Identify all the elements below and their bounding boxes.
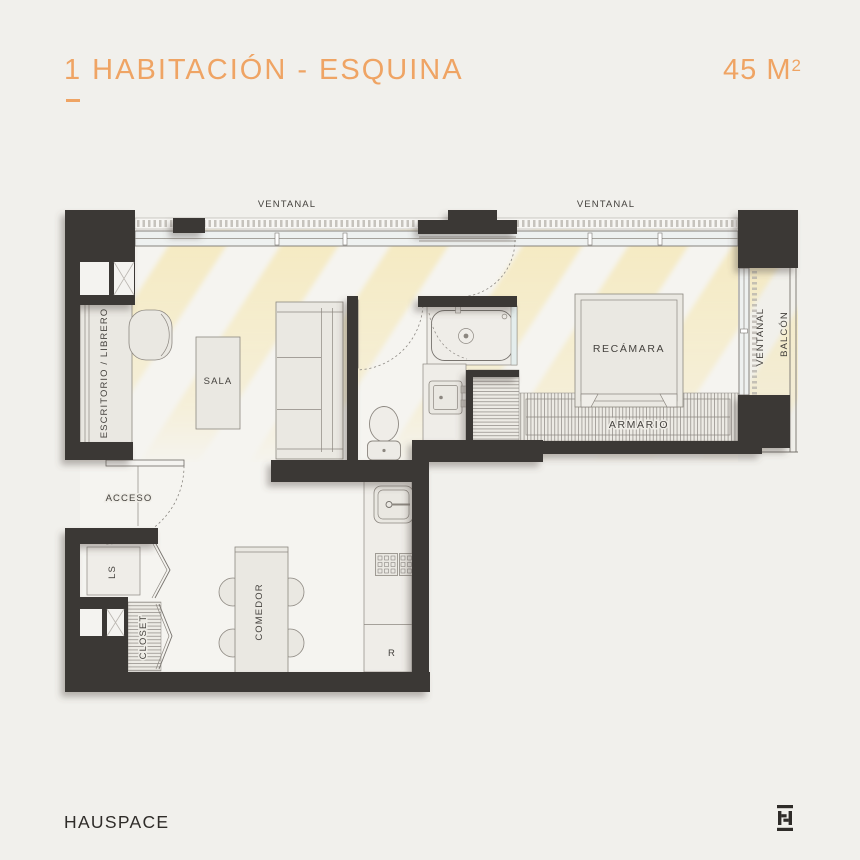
label-ventanal-top-right: VENTANAL — [577, 199, 635, 210]
glass-partition — [511, 306, 517, 365]
label-refrigerador: R — [388, 648, 396, 659]
bathroom-vanity — [423, 364, 466, 443]
label-ls: LS — [107, 565, 118, 579]
label-escritorio: ESCRITORIO / LIBRERO — [99, 308, 110, 439]
brand-name: HAUSPACE — [64, 812, 169, 833]
shower-box — [468, 370, 519, 441]
label-balcon: BALCÓN — [779, 311, 790, 357]
stove-burners — [376, 554, 414, 576]
brand-logo — [776, 804, 794, 832]
label-comedor: COMEDOR — [254, 583, 265, 640]
floorplan-page: 1 HABITACIÓN - ESQUINA 45 M2 — [0, 0, 860, 860]
label-ventanal-top-left: VENTANAL — [258, 199, 316, 210]
sofa — [276, 302, 343, 459]
toilet — [368, 407, 401, 461]
kitchen-counter — [364, 462, 414, 672]
kitchen-sink — [374, 486, 413, 523]
label-acceso: ACCESO — [106, 493, 153, 504]
bathtub — [427, 302, 517, 365]
label-closet: CLOSET — [138, 615, 149, 660]
desk-chair — [129, 310, 172, 360]
label-sala: SALA — [204, 376, 233, 387]
floorplan-drawing: VENTANAL VENTANAL VENTANAL BALCÓN ESCRIT… — [0, 0, 860, 860]
label-armario: ARMARIO — [609, 419, 669, 431]
label-recamara: RECÁMARA — [593, 342, 665, 355]
label-ventanal-side: VENTANAL — [755, 308, 766, 366]
